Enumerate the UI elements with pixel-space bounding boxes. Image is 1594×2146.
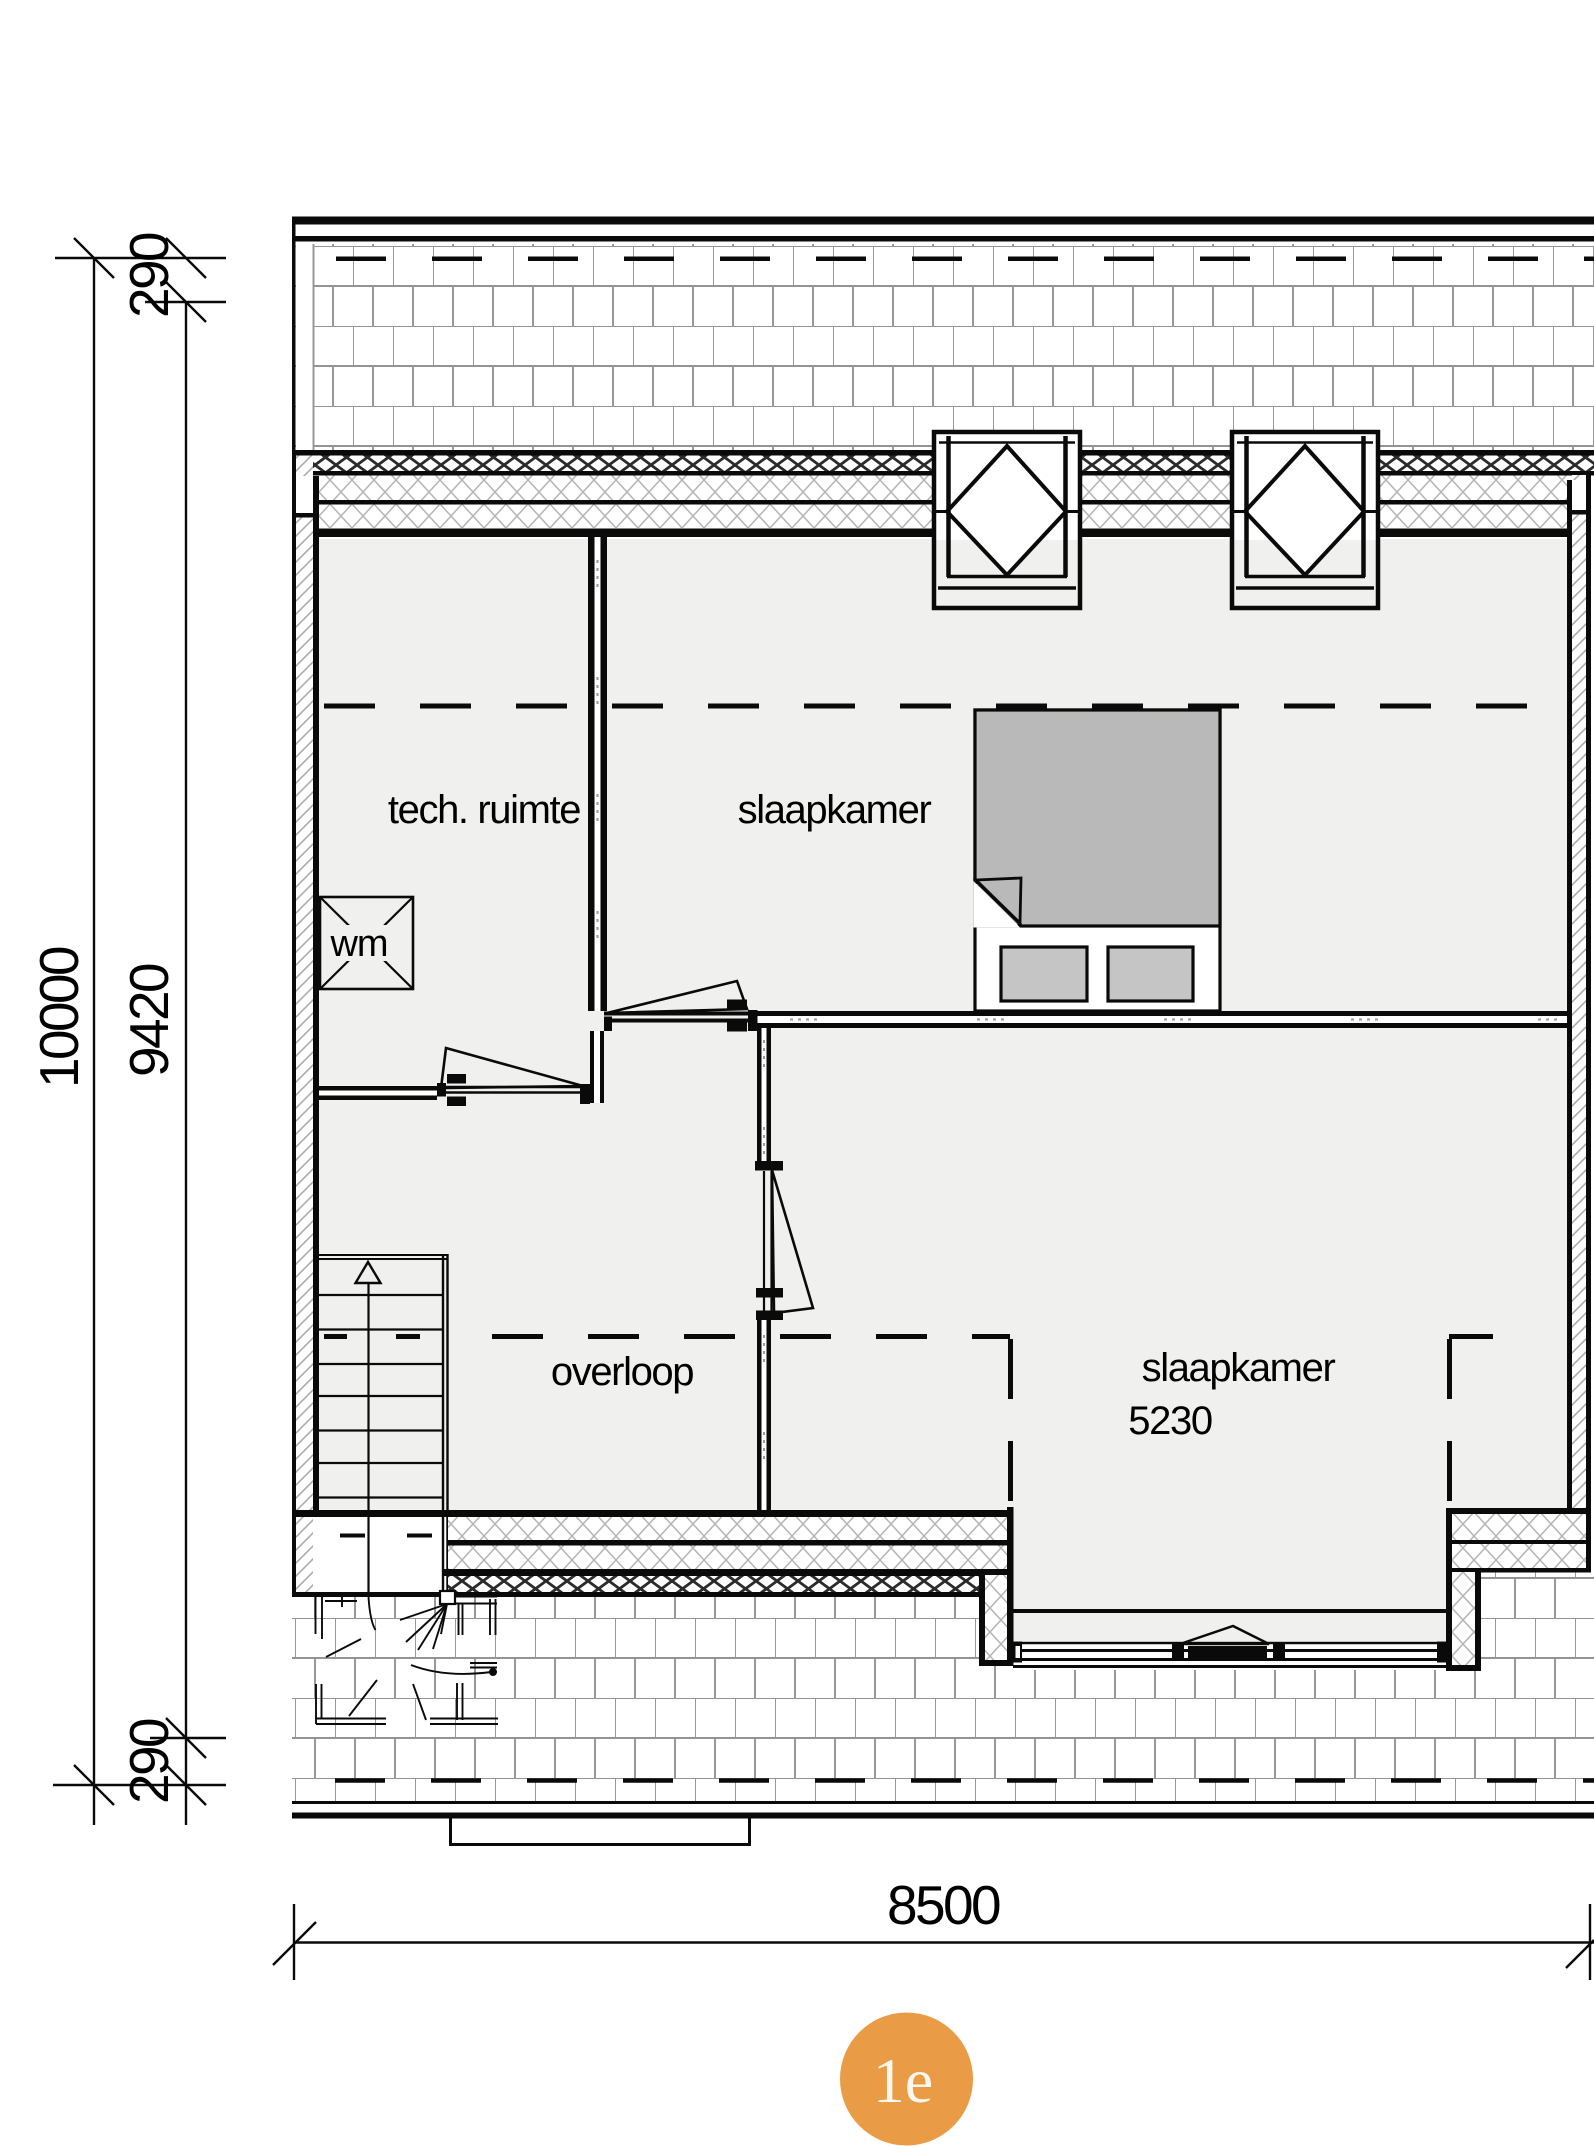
svg-text:slaapkamer: slaapkamer xyxy=(738,788,932,832)
svg-text:290: 290 xyxy=(118,233,180,318)
svg-text:10000: 10000 xyxy=(28,947,90,1088)
svg-text:slaapkamer: slaapkamer xyxy=(1142,1346,1336,1390)
svg-text:tech. ruimte: tech. ruimte xyxy=(388,788,580,832)
svg-text:5230: 5230 xyxy=(1128,1399,1212,1443)
svg-text:overloop: overloop xyxy=(551,1350,693,1394)
svg-text:1e: 1e xyxy=(873,2045,933,2116)
svg-text:wm: wm xyxy=(329,923,387,965)
svg-text:290: 290 xyxy=(118,1719,180,1804)
svg-text:9420: 9420 xyxy=(118,964,180,1077)
svg-text:8500: 8500 xyxy=(887,1874,1000,1936)
